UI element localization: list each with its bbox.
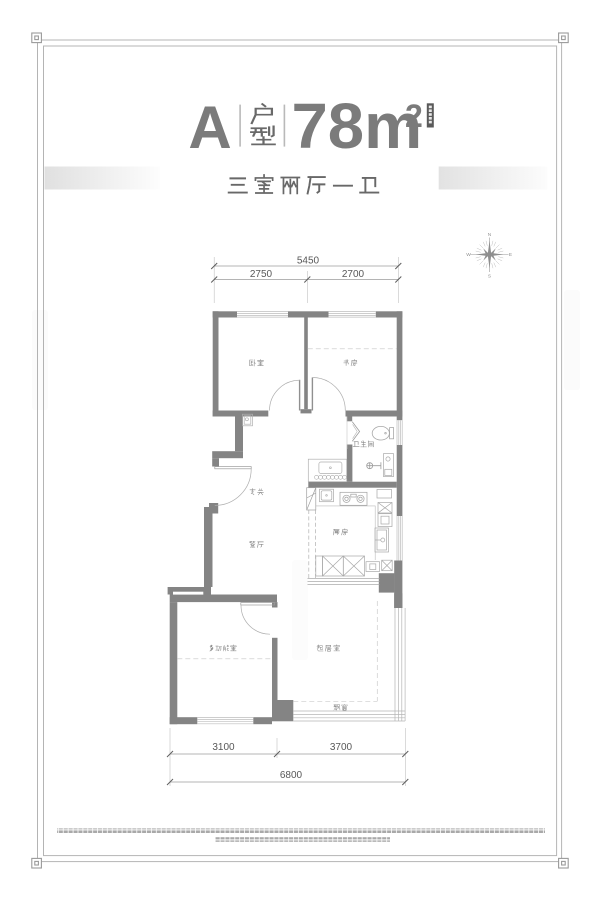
- svg-text:3700: 3700: [330, 742, 353, 753]
- svg-text:78m: 78m: [292, 90, 423, 162]
- svg-text:A: A: [188, 94, 231, 161]
- svg-text:6800: 6800: [280, 770, 303, 781]
- svg-text:N: N: [488, 232, 492, 238]
- svg-text:W: W: [466, 252, 471, 258]
- svg-text:2: 2: [405, 98, 423, 134]
- svg-text:S: S: [488, 274, 491, 280]
- svg-text:5450: 5450: [297, 256, 320, 267]
- svg-text:2750: 2750: [250, 269, 273, 280]
- svg-text:E: E: [509, 252, 512, 258]
- svg-text:3100: 3100: [212, 742, 235, 753]
- svg-text:2700: 2700: [342, 269, 365, 280]
